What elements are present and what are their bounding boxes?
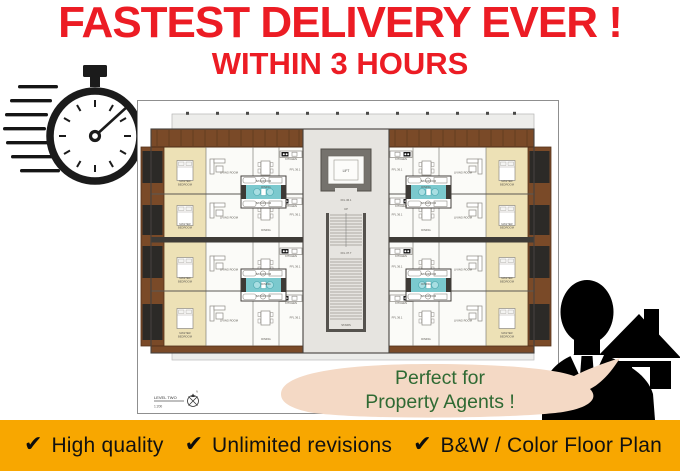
room-label-living: LIVING ROOM bbox=[220, 171, 239, 175]
banner-item: ✔ Unlimited revisions bbox=[185, 433, 392, 458]
bubble-line1: Perfect for bbox=[285, 366, 595, 390]
ffl-label: FFL 36.1 bbox=[392, 265, 403, 269]
banner-label: B&W / Color Floor Plan bbox=[441, 434, 662, 458]
room-label-living: LIVING ROOM bbox=[220, 268, 239, 272]
promo-page: { "header": { "title": "FASTEST DELIVERY… bbox=[0, 0, 680, 471]
room-label-bathroom: BATHROOM bbox=[421, 179, 437, 183]
room-label-dining: DINING bbox=[421, 228, 430, 232]
room-label-master: MASTER bbox=[179, 276, 190, 280]
header: FASTEST DELIVERY EVER ! WITHIN 3 HOURS bbox=[0, 0, 680, 82]
room-label-bathroom: BATHROOM bbox=[256, 201, 272, 205]
ffl-label: FFL 36.1 bbox=[290, 213, 301, 217]
room-label-living: LIVING ROOM bbox=[454, 268, 473, 272]
ffl-label: FFL 36.1 bbox=[290, 316, 301, 320]
room-label-kitchen: KITCHEN bbox=[395, 254, 407, 258]
feature-banner: ✔ High quality ✔ Unlimited revisions ✔ B… bbox=[0, 420, 680, 471]
room-label-master: BEDROOM bbox=[500, 183, 515, 187]
room-label-master: MASTER bbox=[179, 179, 190, 183]
room-label-master: BEDROOM bbox=[500, 280, 515, 284]
room-label-bathroom: BATHROOM bbox=[421, 294, 437, 298]
ffl-label: FFL 36.1 bbox=[392, 213, 403, 217]
room-label-kitchen: KITCHEN bbox=[285, 254, 297, 258]
room-label-living: LIVING ROOM bbox=[220, 216, 239, 220]
wood-strip-bottom-right bbox=[389, 346, 534, 353]
wood-strip-bottom-left bbox=[151, 346, 303, 353]
room-label-master: MASTER bbox=[501, 276, 512, 280]
room-label-kitchen: KITCHEN bbox=[285, 301, 297, 305]
banner-label: Unlimited revisions bbox=[212, 434, 392, 458]
room-label-kitchen: KITCHEN bbox=[285, 157, 297, 161]
ffl-stairs-label: FFL 37.7 bbox=[341, 251, 352, 255]
lift-label: LIFT bbox=[343, 169, 350, 173]
room-label-master: MASTER bbox=[179, 222, 190, 226]
balcony-west bbox=[141, 147, 164, 346]
room-label-kitchen: KITCHEN bbox=[395, 157, 407, 161]
banner-item: ✔ B&W / Color Floor Plan bbox=[413, 433, 662, 458]
room-label-bathroom: BATHROOM bbox=[256, 272, 272, 276]
room-label-master: MASTER bbox=[501, 222, 512, 226]
room-label-master: BEDROOM bbox=[500, 335, 515, 339]
page-title: FASTEST DELIVERY EVER ! bbox=[0, 0, 680, 46]
sheet-scale: 1:200 bbox=[154, 405, 162, 409]
room-label-dining: DINING bbox=[421, 282, 430, 286]
room-label-living: LIVING ROOM bbox=[454, 216, 473, 220]
room-label-master: BEDROOM bbox=[178, 335, 193, 339]
room-label-dining: DINING bbox=[261, 282, 270, 286]
room-label-dining: DINING bbox=[421, 337, 430, 341]
room-label-dining: DINING bbox=[261, 185, 270, 189]
ffl-label: FFL 36.1 bbox=[290, 168, 301, 172]
banner-label: High quality bbox=[51, 434, 163, 458]
speech-bubble-text: Perfect for Property Agents ! bbox=[285, 366, 595, 414]
room-label-living: LIVING ROOM bbox=[454, 171, 473, 175]
room-label-bathroom: BATHROOM bbox=[256, 294, 272, 298]
ffl-label: FFL 36.1 bbox=[392, 316, 403, 320]
check-icon: ✔ bbox=[185, 432, 203, 457]
room-label-dining: DINING bbox=[261, 228, 270, 232]
room-label-kitchen: KITCHEN bbox=[285, 204, 297, 208]
bubble-line2: Property Agents ! bbox=[285, 390, 595, 414]
room-label-kitchen: KITCHEN bbox=[395, 204, 407, 208]
wood-strip-top-left bbox=[151, 129, 303, 147]
ffl-label: FFL 36.1 bbox=[341, 198, 352, 202]
room-label-dining: DINING bbox=[261, 337, 270, 341]
room-label-master: MASTER bbox=[501, 331, 512, 335]
sheet-title: LEVEL TWO bbox=[154, 395, 177, 400]
room-label-master: MASTER bbox=[179, 331, 190, 335]
page-subtitle: WITHIN 3 HOURS bbox=[0, 46, 680, 82]
room-label-kitchen: KITCHEN bbox=[395, 301, 407, 305]
room-label-living: LIVING ROOM bbox=[454, 319, 473, 323]
north-letter: N bbox=[196, 390, 198, 394]
check-icon: ✔ bbox=[413, 432, 431, 457]
room-label-bathroom: BATHROOM bbox=[421, 201, 437, 205]
wood-strip-top-right bbox=[389, 129, 534, 147]
room-label-master: MASTER bbox=[501, 179, 512, 183]
room-label-master: BEDROOM bbox=[178, 280, 193, 284]
stairs-label: STAIRS bbox=[341, 323, 351, 327]
room-label-master: BEDROOM bbox=[178, 226, 193, 230]
check-icon: ✔ bbox=[24, 432, 42, 457]
terrace-band-top bbox=[172, 112, 534, 129]
room-label-dining: DINING bbox=[421, 185, 430, 189]
room-label-bathroom: BATHROOM bbox=[256, 179, 272, 183]
north-arrow-icon: N bbox=[188, 390, 199, 407]
room-label-master: BEDROOM bbox=[500, 226, 515, 230]
banner-item: ✔ High quality bbox=[24, 433, 164, 458]
title-block: LEVEL TWO 1:200 bbox=[154, 395, 184, 409]
up-label: UP bbox=[344, 207, 348, 211]
room-label-living: LIVING ROOM bbox=[220, 319, 239, 323]
ffl-label: FFL 36.1 bbox=[290, 265, 301, 269]
ffl-label: FFL 36.1 bbox=[392, 168, 403, 172]
room-label-master: BEDROOM bbox=[178, 183, 193, 187]
room-label-bathroom: BATHROOM bbox=[421, 272, 437, 276]
